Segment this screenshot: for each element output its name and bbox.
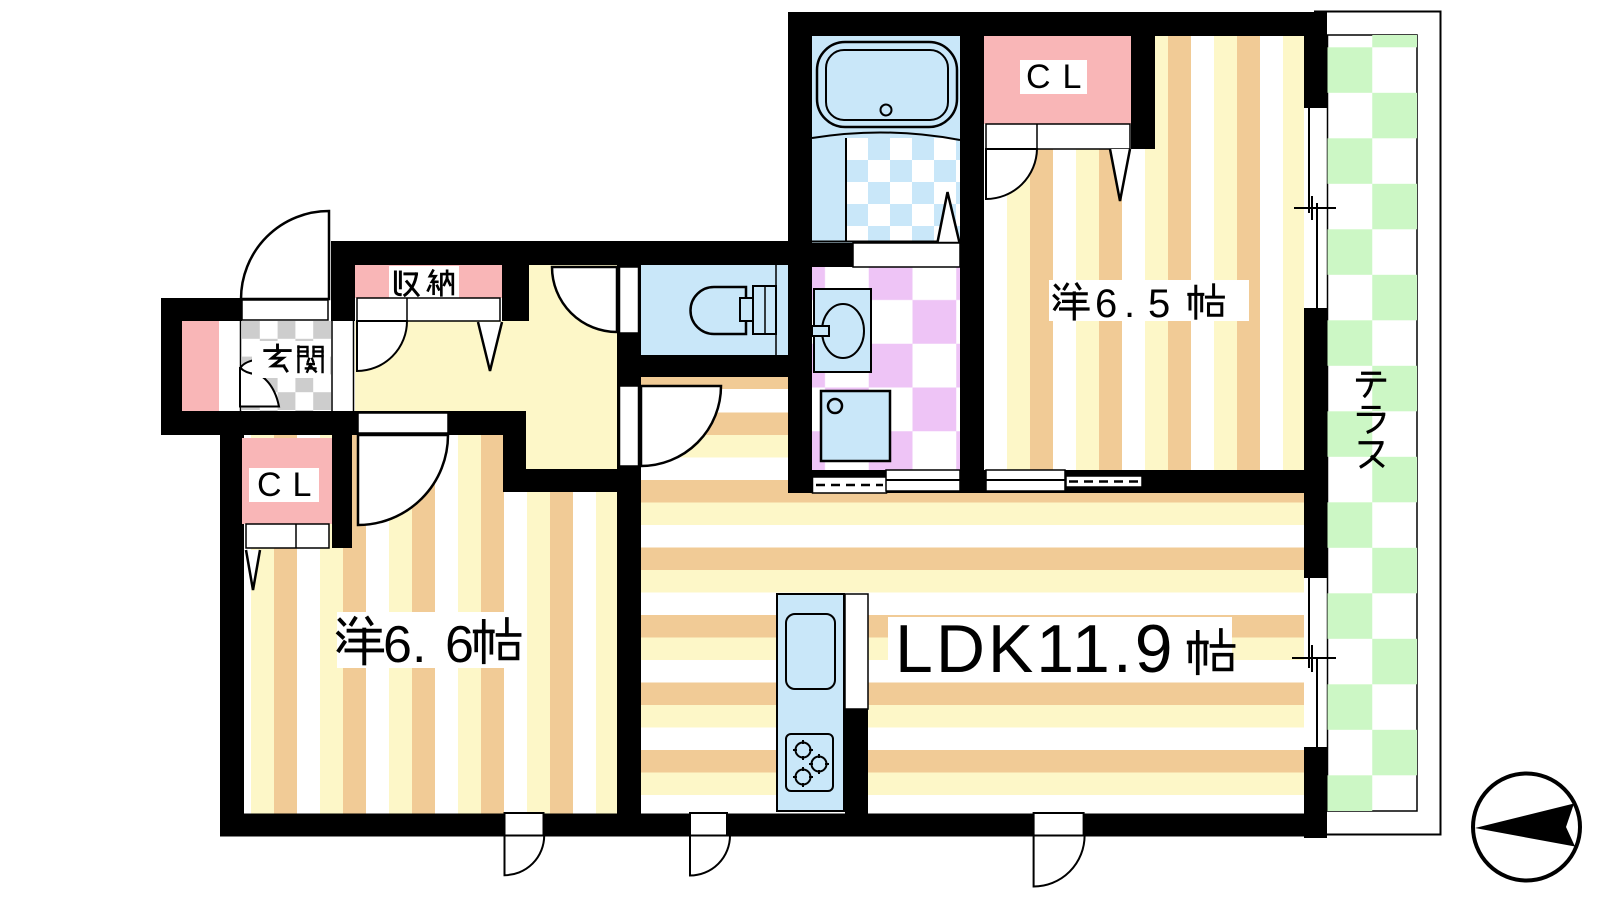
svg-text:.: .: [1124, 282, 1135, 326]
svg-text:6: 6: [383, 616, 412, 674]
svg-text:LDK11.9: LDK11.9: [895, 611, 1176, 687]
svg-text:5: 5: [1148, 282, 1170, 326]
svg-text:6: 6: [1095, 282, 1117, 326]
svg-text:CL: CL: [1026, 58, 1093, 96]
svg-text:6: 6: [445, 616, 474, 674]
svg-text:CL: CL: [257, 466, 322, 504]
svg-text:.: .: [412, 616, 426, 674]
